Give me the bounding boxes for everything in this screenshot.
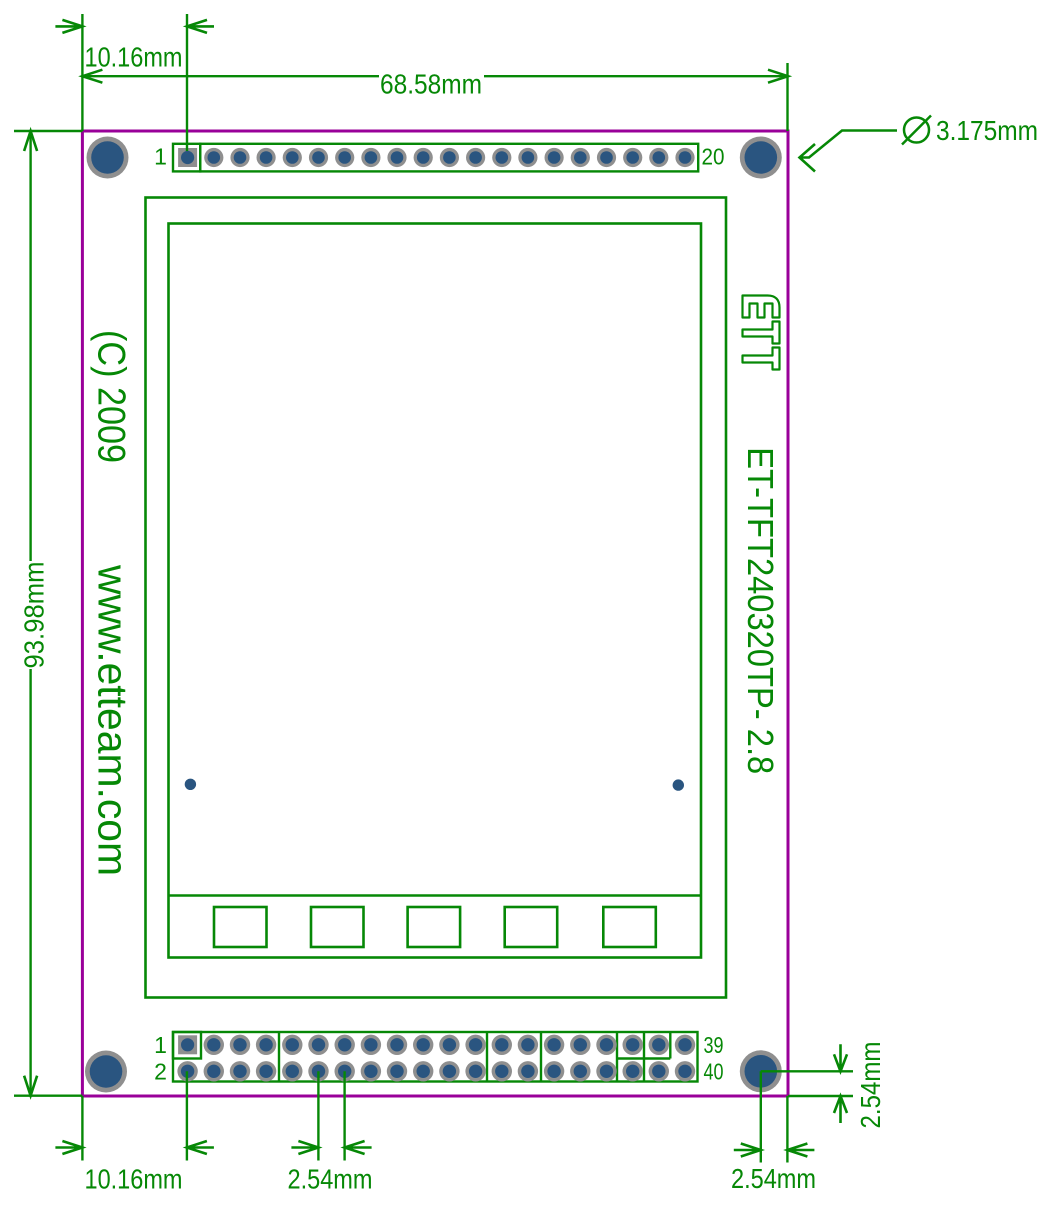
svg-text:39: 39 (704, 1032, 724, 1058)
svg-text:20: 20 (702, 144, 725, 170)
svg-text:1: 1 (154, 1032, 167, 1058)
svg-text:2: 2 (154, 1058, 167, 1084)
svg-text:(C) 2009: (C) 2009 (90, 330, 133, 463)
svg-text:2.54mm: 2.54mm (288, 1164, 373, 1195)
svg-text:93.98mm: 93.98mm (18, 562, 49, 669)
svg-text:1: 1 (154, 144, 167, 170)
svg-text:10.16mm: 10.16mm (85, 42, 183, 73)
svg-text:2.54mm: 2.54mm (855, 1042, 886, 1129)
svg-text:www.etteam.com: www.etteam.com (90, 564, 137, 876)
svg-text:10.16mm: 10.16mm (85, 1164, 183, 1195)
svg-text:3.175mm: 3.175mm (936, 115, 1038, 146)
svg-text:2.54mm: 2.54mm (731, 1163, 816, 1194)
svg-text:ET-TFT240320TP- 2.8: ET-TFT240320TP- 2.8 (740, 447, 781, 774)
svg-text:68.58mm: 68.58mm (380, 69, 482, 100)
svg-text:40: 40 (704, 1058, 724, 1084)
